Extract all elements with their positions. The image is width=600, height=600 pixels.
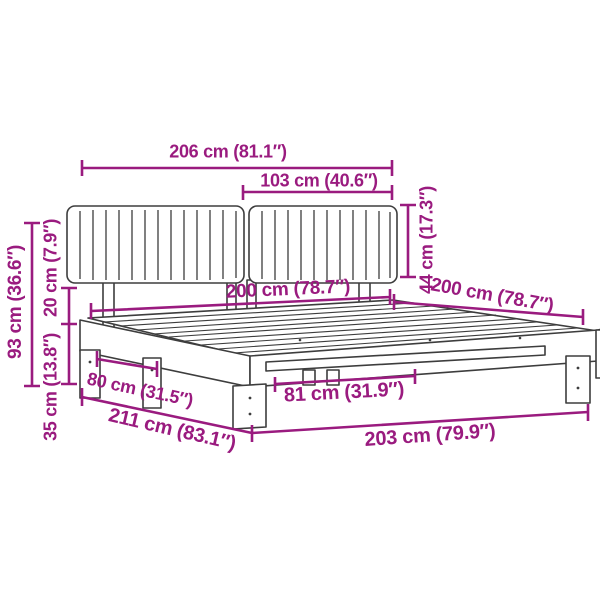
dim-label-headboard-height: 93 cm (36.6″) — [5, 245, 27, 359]
dim-label-total-width: 206 cm (81.1″) — [169, 142, 287, 163]
headboard — [67, 206, 397, 283]
dim-label-gap-20: 20 cm (7.9″) — [41, 219, 62, 317]
dim-label-frame-height: 35 cm (13.8″) — [41, 333, 62, 441]
dimension-diagram: 206 cm (81.1″) 103 cm (40.6″) 44 cm (17.… — [0, 0, 600, 600]
dimline-44 — [400, 205, 416, 277]
dim-label-headboard-section: 103 cm (40.6″) — [260, 171, 378, 192]
dimline-20-35 — [61, 288, 77, 384]
